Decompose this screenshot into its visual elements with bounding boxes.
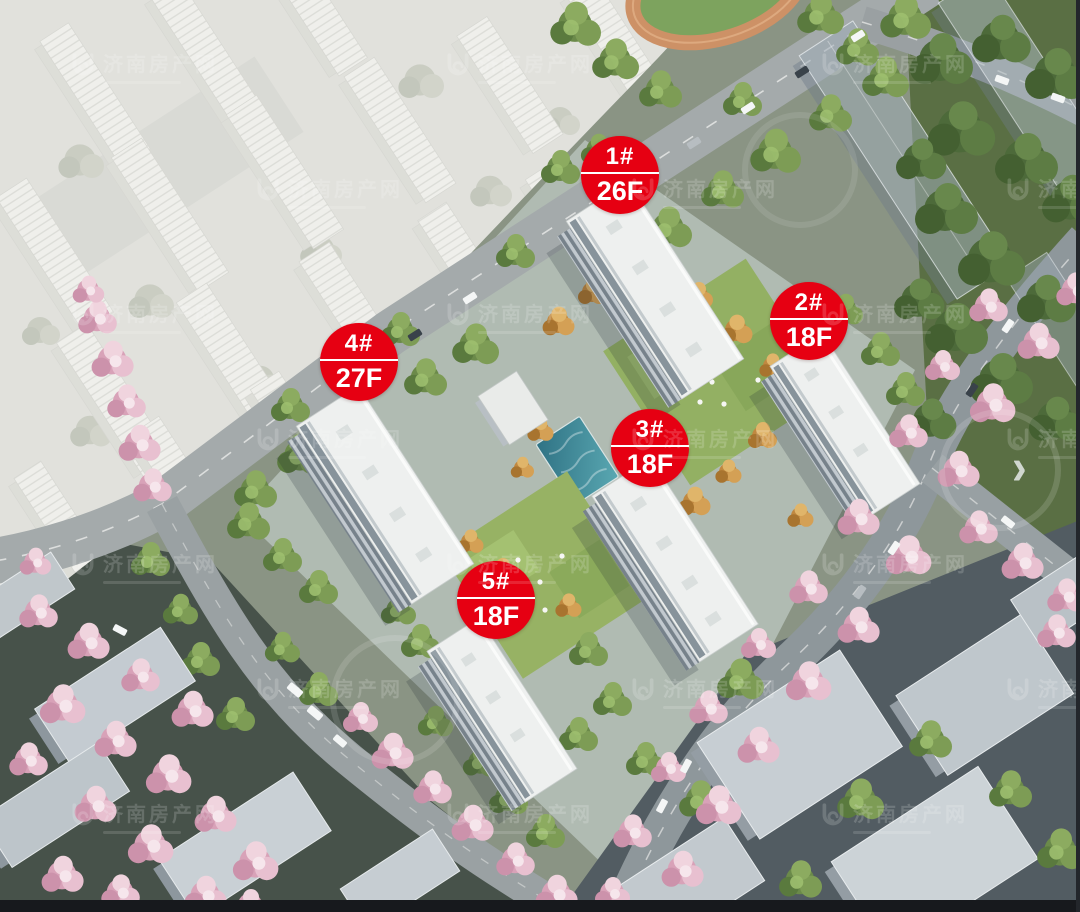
badge-divider [581, 172, 659, 174]
building-number: 2# [795, 289, 824, 317]
bottom-letterbox-bar [0, 900, 1080, 912]
building-floors: 26F [597, 176, 644, 207]
badge-divider [611, 445, 689, 447]
building-floors: 18F [786, 322, 833, 353]
building-floors: 18F [627, 449, 674, 480]
badge-divider [770, 318, 848, 320]
building-badge-5: 5# 18F [457, 561, 535, 639]
building-number: 5# [482, 568, 511, 596]
building-badge-1: 1# 26F [581, 136, 659, 214]
building-badge-4: 4# 27F [320, 323, 398, 401]
building-badge-2: 2# 18F [770, 282, 848, 360]
building-floors: 18F [473, 601, 520, 632]
right-edge-bar [1076, 0, 1080, 912]
building-number: 4# [345, 330, 374, 358]
aerial-siteplan-screenshot: 1# 26F 2# 18F 3# 18F 4# 27F 5# 18F 济南房产网 [0, 0, 1080, 912]
badge-divider [457, 597, 535, 599]
building-number: 1# [606, 143, 635, 171]
building-number: 3# [636, 416, 665, 444]
badge-divider [320, 359, 398, 361]
building-badge-3: 3# 18F [611, 409, 689, 487]
aerial-render-image [0, 0, 1080, 912]
building-floors: 27F [336, 363, 383, 394]
carousel-next-icon[interactable]: › [1012, 443, 1027, 494]
